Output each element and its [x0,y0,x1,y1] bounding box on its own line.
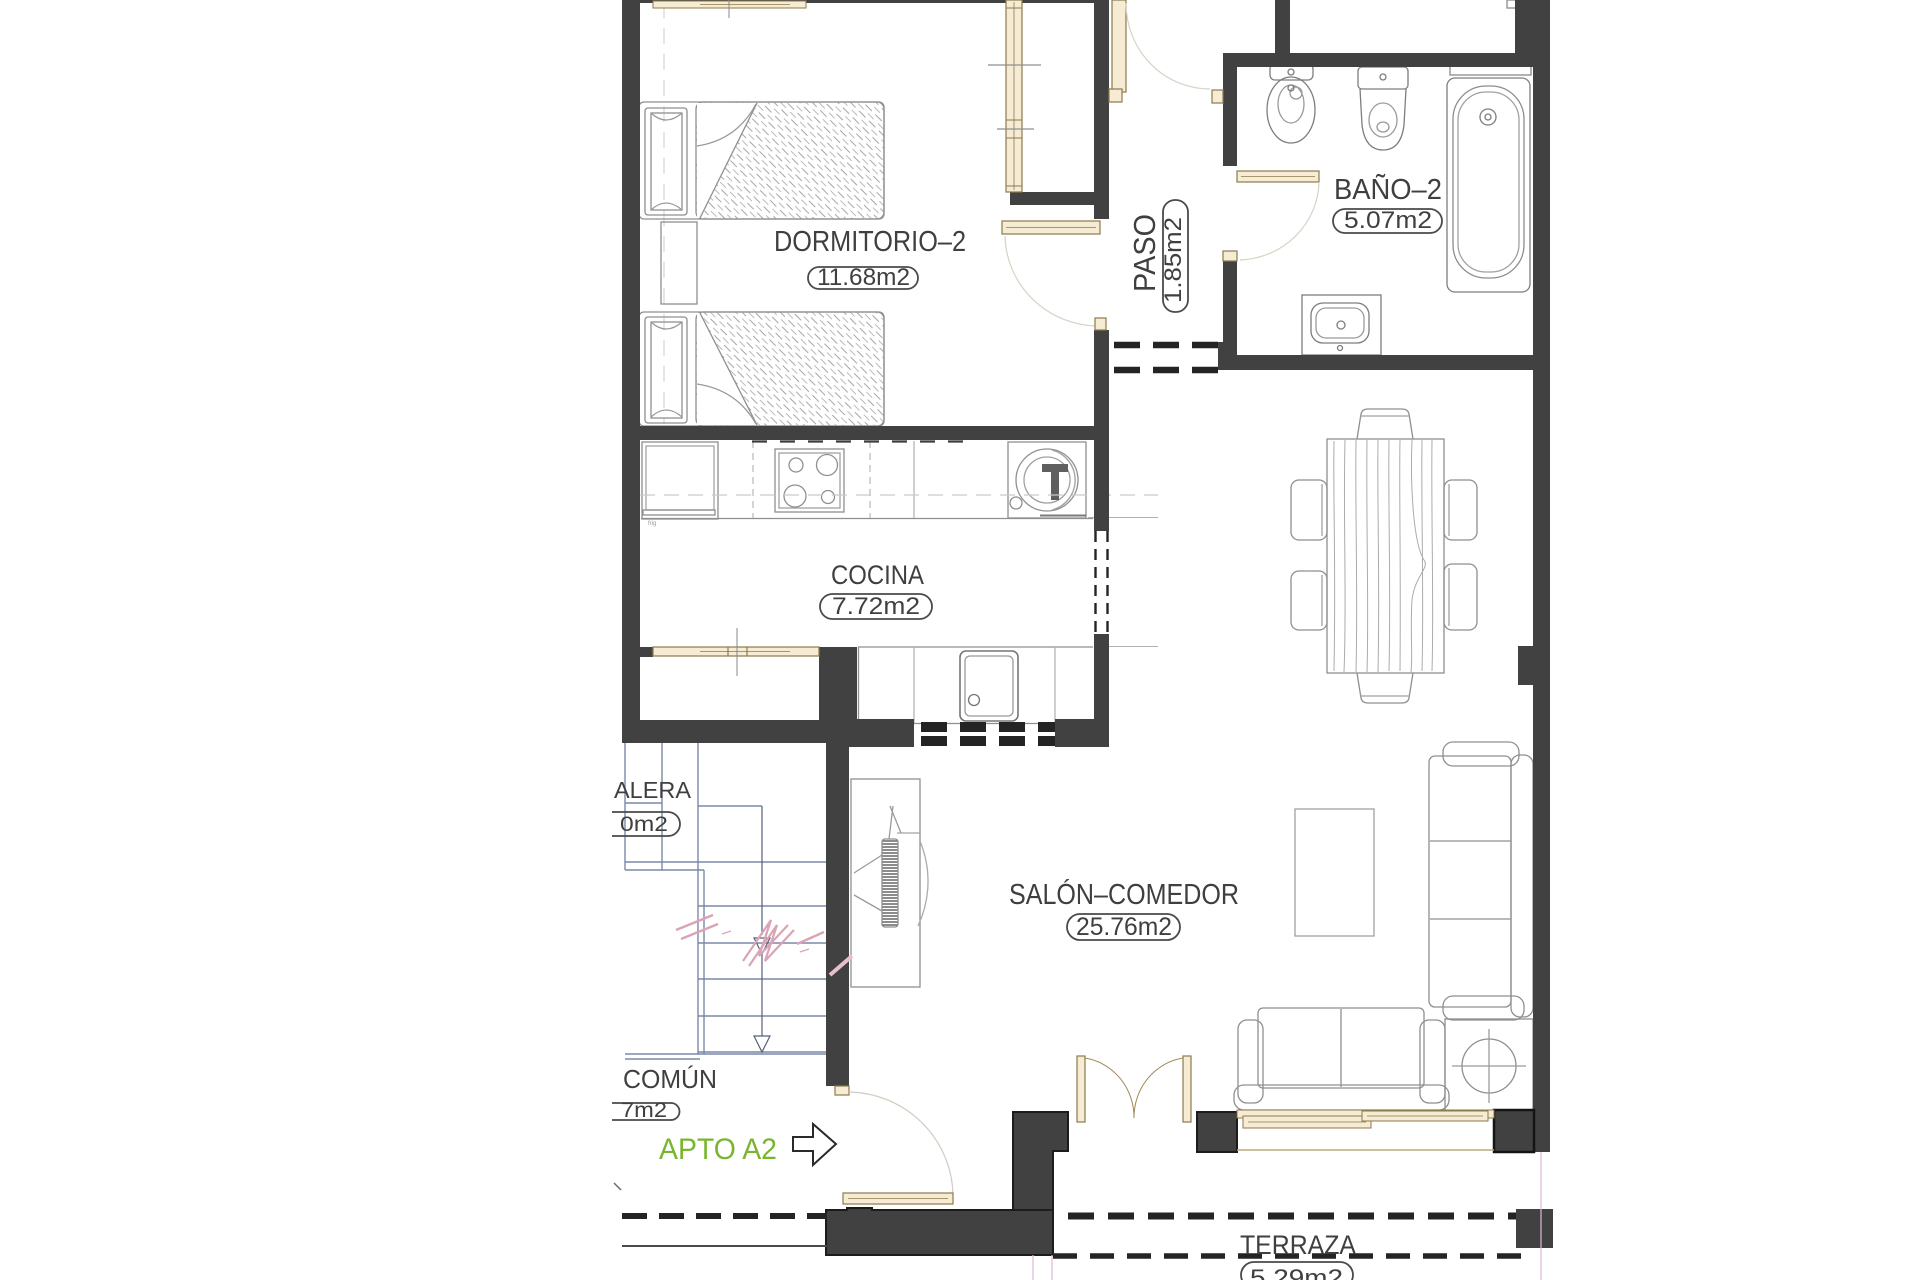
svg-text:APTO A2: APTO A2 [659,1133,777,1166]
svg-text:COCINA: COCINA [831,560,924,590]
svg-text:5.07m2: 5.07m2 [1344,207,1432,234]
svg-text:PASO: PASO [1127,214,1162,292]
svg-text:25.76m2: 25.76m2 [1076,913,1172,941]
svg-text:COMÚN: COMÚN [623,1064,717,1094]
svg-text:frig: frig [648,521,656,527]
svg-text:5.29m2: 5.29m2 [1250,1265,1343,1280]
svg-text:BAÑO–2: BAÑO–2 [1334,172,1442,206]
svg-text:1.85m2: 1.85m2 [1160,217,1187,303]
svg-text:7m2: 7m2 [621,1099,667,1122]
svg-text:TERRAZA: TERRAZA [1240,1230,1356,1260]
svg-text:SALÓN–COMEDOR: SALÓN–COMEDOR [1009,878,1239,911]
svg-text:0m2: 0m2 [620,813,668,836]
svg-text:ALERA: ALERA [614,777,692,803]
svg-text:11.68m2: 11.68m2 [817,264,910,291]
svg-text:DORMITORIO–2: DORMITORIO–2 [774,226,966,258]
svg-text:7.72m2: 7.72m2 [832,593,920,620]
